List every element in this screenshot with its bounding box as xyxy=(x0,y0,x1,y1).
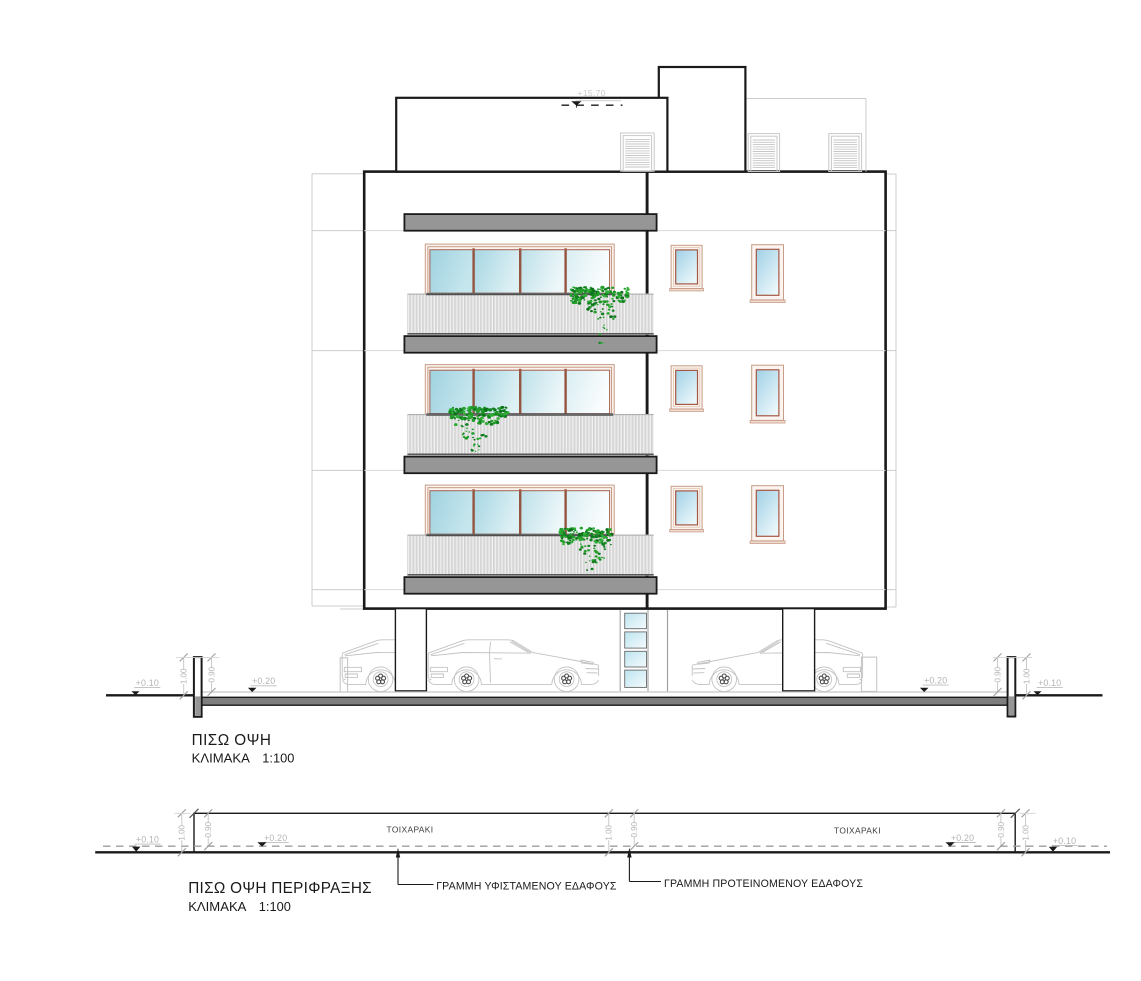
svg-text:1.00: 1.00 xyxy=(178,824,187,840)
svg-text:+0.20: +0.20 xyxy=(264,833,287,843)
svg-text:1.00: 1.00 xyxy=(1022,668,1031,684)
svg-text:+0.10: +0.10 xyxy=(136,835,159,845)
svg-text:1:100: 1:100 xyxy=(259,899,291,914)
svg-text:1:100: 1:100 xyxy=(262,751,294,766)
svg-text:1.00: 1.00 xyxy=(605,824,614,840)
svg-text:0.90: 0.90 xyxy=(207,666,216,682)
svg-text:+0.10: +0.10 xyxy=(136,678,159,688)
svg-text:ΠΙΣΩ ΟΨΗ ΠΕΡΙΦΡΑΞΗΣ: ΠΙΣΩ ΟΨΗ ΠΕΡΙΦΡΑΞΗΣ xyxy=(188,880,372,897)
svg-text:1.00: 1.00 xyxy=(1021,824,1030,840)
svg-text:0.90: 0.90 xyxy=(997,821,1006,837)
svg-text:1.00: 1.00 xyxy=(180,668,189,684)
svg-text:ΤΟΙΧΑΡΑΚΙ: ΤΟΙΧΑΡΑΚΙ xyxy=(834,825,881,835)
svg-text:+0.10: +0.10 xyxy=(1053,836,1076,846)
svg-text:+0.20: +0.20 xyxy=(924,676,947,686)
svg-text:+15.70: +15.70 xyxy=(578,88,606,98)
svg-text:ΚΛΙΜΑΚΑ: ΚΛΙΜΑΚΑ xyxy=(188,899,246,914)
svg-text:ΓΡΑΜΜΗ ΠΡΟΤΕΙΝΟΜΕΝΟΥ ΕΔΑΦΟΥΣ: ΓΡΑΜΜΗ ΠΡΟΤΕΙΝΟΜΕΝΟΥ ΕΔΑΦΟΥΣ xyxy=(664,878,863,890)
svg-text:+0.20: +0.20 xyxy=(951,833,974,843)
svg-text:0.90: 0.90 xyxy=(993,666,1002,682)
svg-text:ΓΡΑΜΜΗ ΥΦΙΣΤΑΜΕΝΟΥ ΕΔΑΦΟΥΣ: ΓΡΑΜΜΗ ΥΦΙΣΤΑΜΕΝΟΥ ΕΔΑΦΟΥΣ xyxy=(436,881,617,893)
svg-text:0.90: 0.90 xyxy=(630,821,639,837)
svg-text:0.90: 0.90 xyxy=(204,821,213,837)
svg-text:ΤΟΙΧΑΡΑΚΙ: ΤΟΙΧΑΡΑΚΙ xyxy=(386,824,433,834)
svg-text:+0.20: +0.20 xyxy=(252,676,275,686)
svg-text:ΚΛΙΜΑΚΑ: ΚΛΙΜΑΚΑ xyxy=(192,751,250,766)
svg-text:+0.10: +0.10 xyxy=(1038,678,1061,688)
svg-text:ΠΙΣΩ ΟΨΗ: ΠΙΣΩ ΟΨΗ xyxy=(192,732,272,749)
